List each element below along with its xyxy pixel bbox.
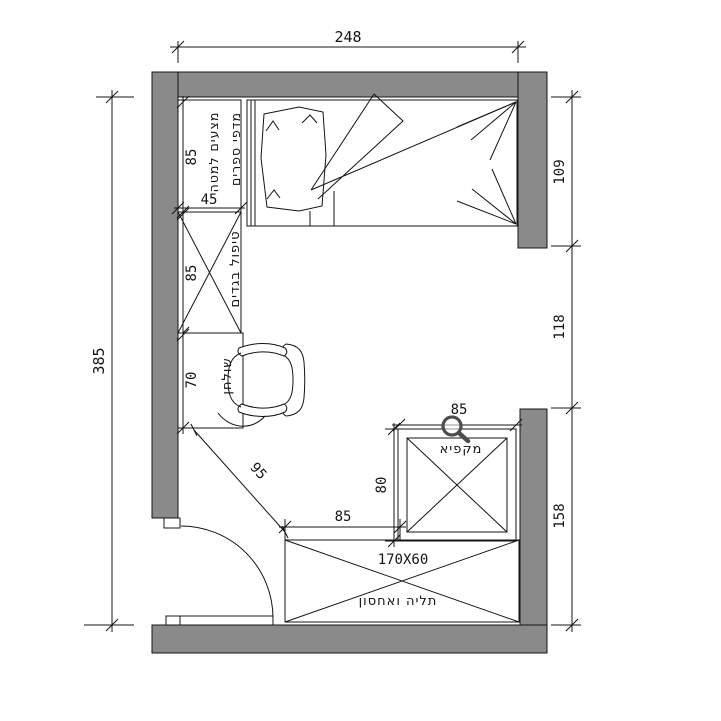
room-width-dim: 248 <box>334 28 361 46</box>
dim-left-height: 385 <box>84 90 134 632</box>
storage-size-label: 170X60 <box>378 552 429 568</box>
door <box>164 518 273 625</box>
wall-bottom <box>152 625 547 653</box>
right-lower-dim: 158 <box>552 503 568 528</box>
right-upper-dim: 109 <box>552 159 568 184</box>
closet-label: טיפול בגדים <box>228 230 243 307</box>
desk: 70 שולחן <box>177 329 243 434</box>
wall-right-lower <box>520 409 547 625</box>
clearance-dim-value: 95 <box>246 460 269 483</box>
room-height-dim: 385 <box>90 347 108 374</box>
floor-plan-drawing: 85 מצעים למטה מדפי ספרים 45 85 טיפול בגד… <box>0 0 721 721</box>
freezer-depth-dim: 80 <box>374 477 390 494</box>
dim-right-segments: 109 118 158 <box>551 90 581 632</box>
door-leaf <box>180 616 273 625</box>
shelf-cabinet: 85 מצעים למטה מדפי ספרים 45 <box>172 96 247 218</box>
linens-label: מצעים למטה <box>206 112 221 193</box>
storage-offset-dim: 85 <box>335 509 352 525</box>
closet: 85 טיפול בגדים <box>177 208 243 339</box>
bed <box>247 94 517 226</box>
desk-label: שולחן <box>220 357 235 394</box>
door-jamb-bottom <box>166 616 180 625</box>
wall-left <box>152 72 178 518</box>
shelf-depth-dim: 45 <box>201 192 218 208</box>
closet-length-dim: 85 <box>184 265 200 282</box>
bookshelves-label: מדפי ספרים <box>228 112 243 186</box>
freezer-label: מקפיא <box>440 442 483 457</box>
shelf-length-dim: 85 <box>184 149 200 166</box>
clearance-dim-line <box>194 430 285 532</box>
wall-right-upper <box>518 72 547 248</box>
storage-label: תליה ואחסון <box>359 594 438 609</box>
door-swing-arc <box>181 526 273 618</box>
dim-top-width: 248 <box>170 28 526 63</box>
clearance-dim: 95 <box>191 424 288 538</box>
chair-armrest-top <box>238 344 287 357</box>
chair-armrest-bottom <box>238 404 287 417</box>
right-middle-dim: 118 <box>552 314 568 339</box>
wall-top <box>152 72 547 97</box>
door-jamb-top <box>164 518 180 528</box>
floor-plan: 85 מצעים למטה מדפי ספרים 45 85 טיפול בגד… <box>0 0 721 721</box>
desk-length-dim: 70 <box>184 372 200 389</box>
